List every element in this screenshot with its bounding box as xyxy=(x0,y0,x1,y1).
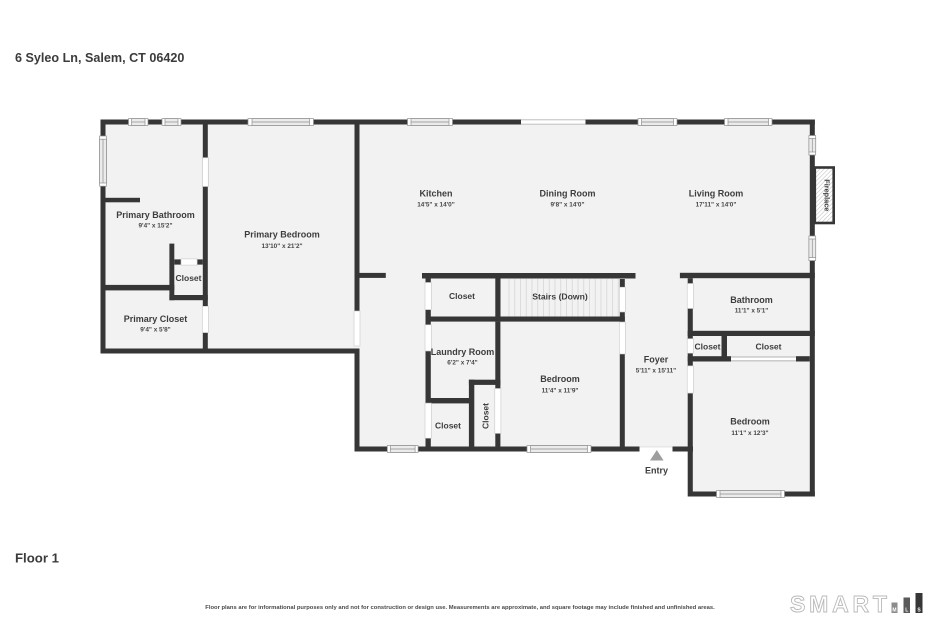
svg-text:6'2" x 7'4": 6'2" x 7'4" xyxy=(447,360,477,367)
svg-text:9'4" x 5'8": 9'4" x 5'8" xyxy=(140,327,170,334)
svg-text:SMART: SMART xyxy=(790,591,891,617)
svg-text:Laundry Room: Laundry Room xyxy=(431,347,495,357)
svg-text:9'8" x 14'0": 9'8" x 14'0" xyxy=(551,202,585,209)
svg-text:5'11" x 15'11": 5'11" x 15'11" xyxy=(636,368,676,375)
svg-text:Floor 1: Floor 1 xyxy=(15,551,59,566)
svg-text:Closet: Closet xyxy=(449,291,475,301)
svg-text:Closet: Closet xyxy=(695,342,721,352)
svg-text:Bathroom: Bathroom xyxy=(730,295,773,305)
svg-text:Closet: Closet xyxy=(176,273,202,283)
svg-text:6 Syleo Ln, Salem, CT 06420: 6 Syleo Ln, Salem, CT 06420 xyxy=(15,51,184,65)
svg-text:Dining Room: Dining Room xyxy=(540,189,596,199)
svg-text:17'11" x 14'0": 17'11" x 14'0" xyxy=(696,202,737,209)
svg-text:11'1" x 12'3": 11'1" x 12'3" xyxy=(731,430,768,437)
svg-text:11'4" x 11'9": 11'4" x 11'9" xyxy=(542,388,579,395)
svg-text:Closet: Closet xyxy=(756,342,782,352)
svg-text:Kitchen: Kitchen xyxy=(419,189,452,199)
svg-text:13'10" x 21'2": 13'10" x 21'2" xyxy=(261,243,302,250)
svg-text:9'4" x 15'2": 9'4" x 15'2" xyxy=(139,223,173,230)
svg-text:L: L xyxy=(905,608,908,614)
svg-text:14'5" x 14'0": 14'5" x 14'0" xyxy=(417,202,455,209)
svg-text:Entry: Entry xyxy=(645,466,668,476)
svg-text:Primary Closet: Primary Closet xyxy=(124,314,188,324)
svg-text:Closet: Closet xyxy=(435,421,461,431)
svg-text:Fireplace: Fireplace xyxy=(823,179,832,211)
svg-text:M: M xyxy=(892,608,896,614)
svg-text:11'1" x 5'1": 11'1" x 5'1" xyxy=(735,308,769,315)
svg-text:Floor plans are for informatio: Floor plans are for informational purpos… xyxy=(205,605,715,611)
svg-text:Bedroom: Bedroom xyxy=(730,417,770,427)
svg-text:Primary Bedroom: Primary Bedroom xyxy=(244,230,320,240)
svg-text:Primary Bathroom: Primary Bathroom xyxy=(116,210,195,220)
svg-text:Living Room: Living Room xyxy=(689,189,744,199)
svg-text:Foyer: Foyer xyxy=(644,355,669,365)
svg-text:Stairs (Down): Stairs (Down) xyxy=(532,292,588,302)
svg-text:Closet: Closet xyxy=(481,403,491,429)
svg-text:Bedroom: Bedroom xyxy=(540,374,580,384)
